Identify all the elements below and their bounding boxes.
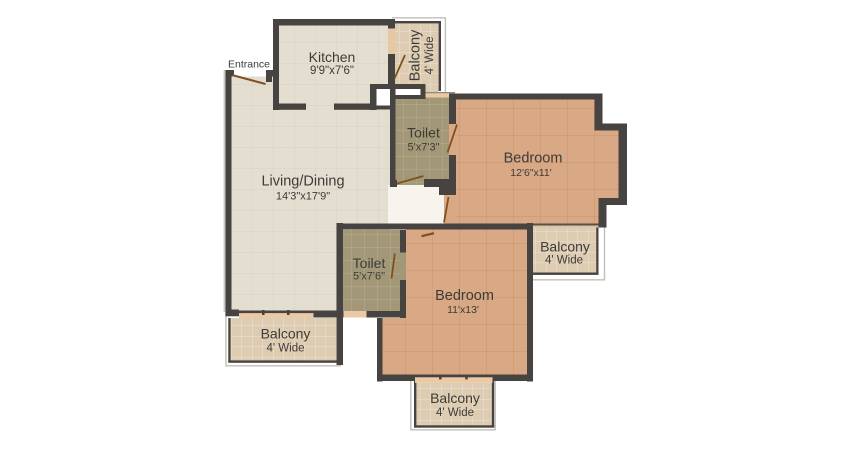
svg-text:9'9"x7'6": 9'9"x7'6" [310, 65, 354, 77]
svg-text:Bedroom: Bedroom [504, 151, 563, 167]
svg-text:Balcony: Balcony [430, 390, 480, 406]
svg-text:11'x13': 11'x13' [447, 304, 479, 316]
svg-text:Entrance: Entrance [228, 59, 270, 71]
svg-text:Balcony: Balcony [408, 29, 424, 81]
svg-text:5'x7'3": 5'x7'3" [408, 142, 440, 154]
svg-text:Balcony: Balcony [540, 239, 590, 255]
svg-text:Living/Dining: Living/Dining [261, 174, 344, 190]
svg-text:4' Wide: 4' Wide [436, 407, 474, 419]
svg-text:4' Wide: 4' Wide [267, 343, 305, 355]
svg-text:4' Wide: 4' Wide [545, 255, 583, 267]
svg-text:Kitchen: Kitchen [309, 49, 356, 65]
svg-text:Bedroom: Bedroom [435, 288, 494, 304]
svg-text:Toilet: Toilet [353, 255, 386, 271]
svg-text:Balcony: Balcony [261, 326, 311, 342]
svg-text:14'3"x17'9": 14'3"x17'9" [276, 191, 330, 203]
svg-text:5'x7'6": 5'x7'6" [353, 271, 385, 283]
svg-text:12'6"x11': 12'6"x11' [510, 167, 551, 179]
svg-text:Toilet: Toilet [407, 125, 440, 141]
svg-text:4' Wide: 4' Wide [424, 37, 436, 75]
